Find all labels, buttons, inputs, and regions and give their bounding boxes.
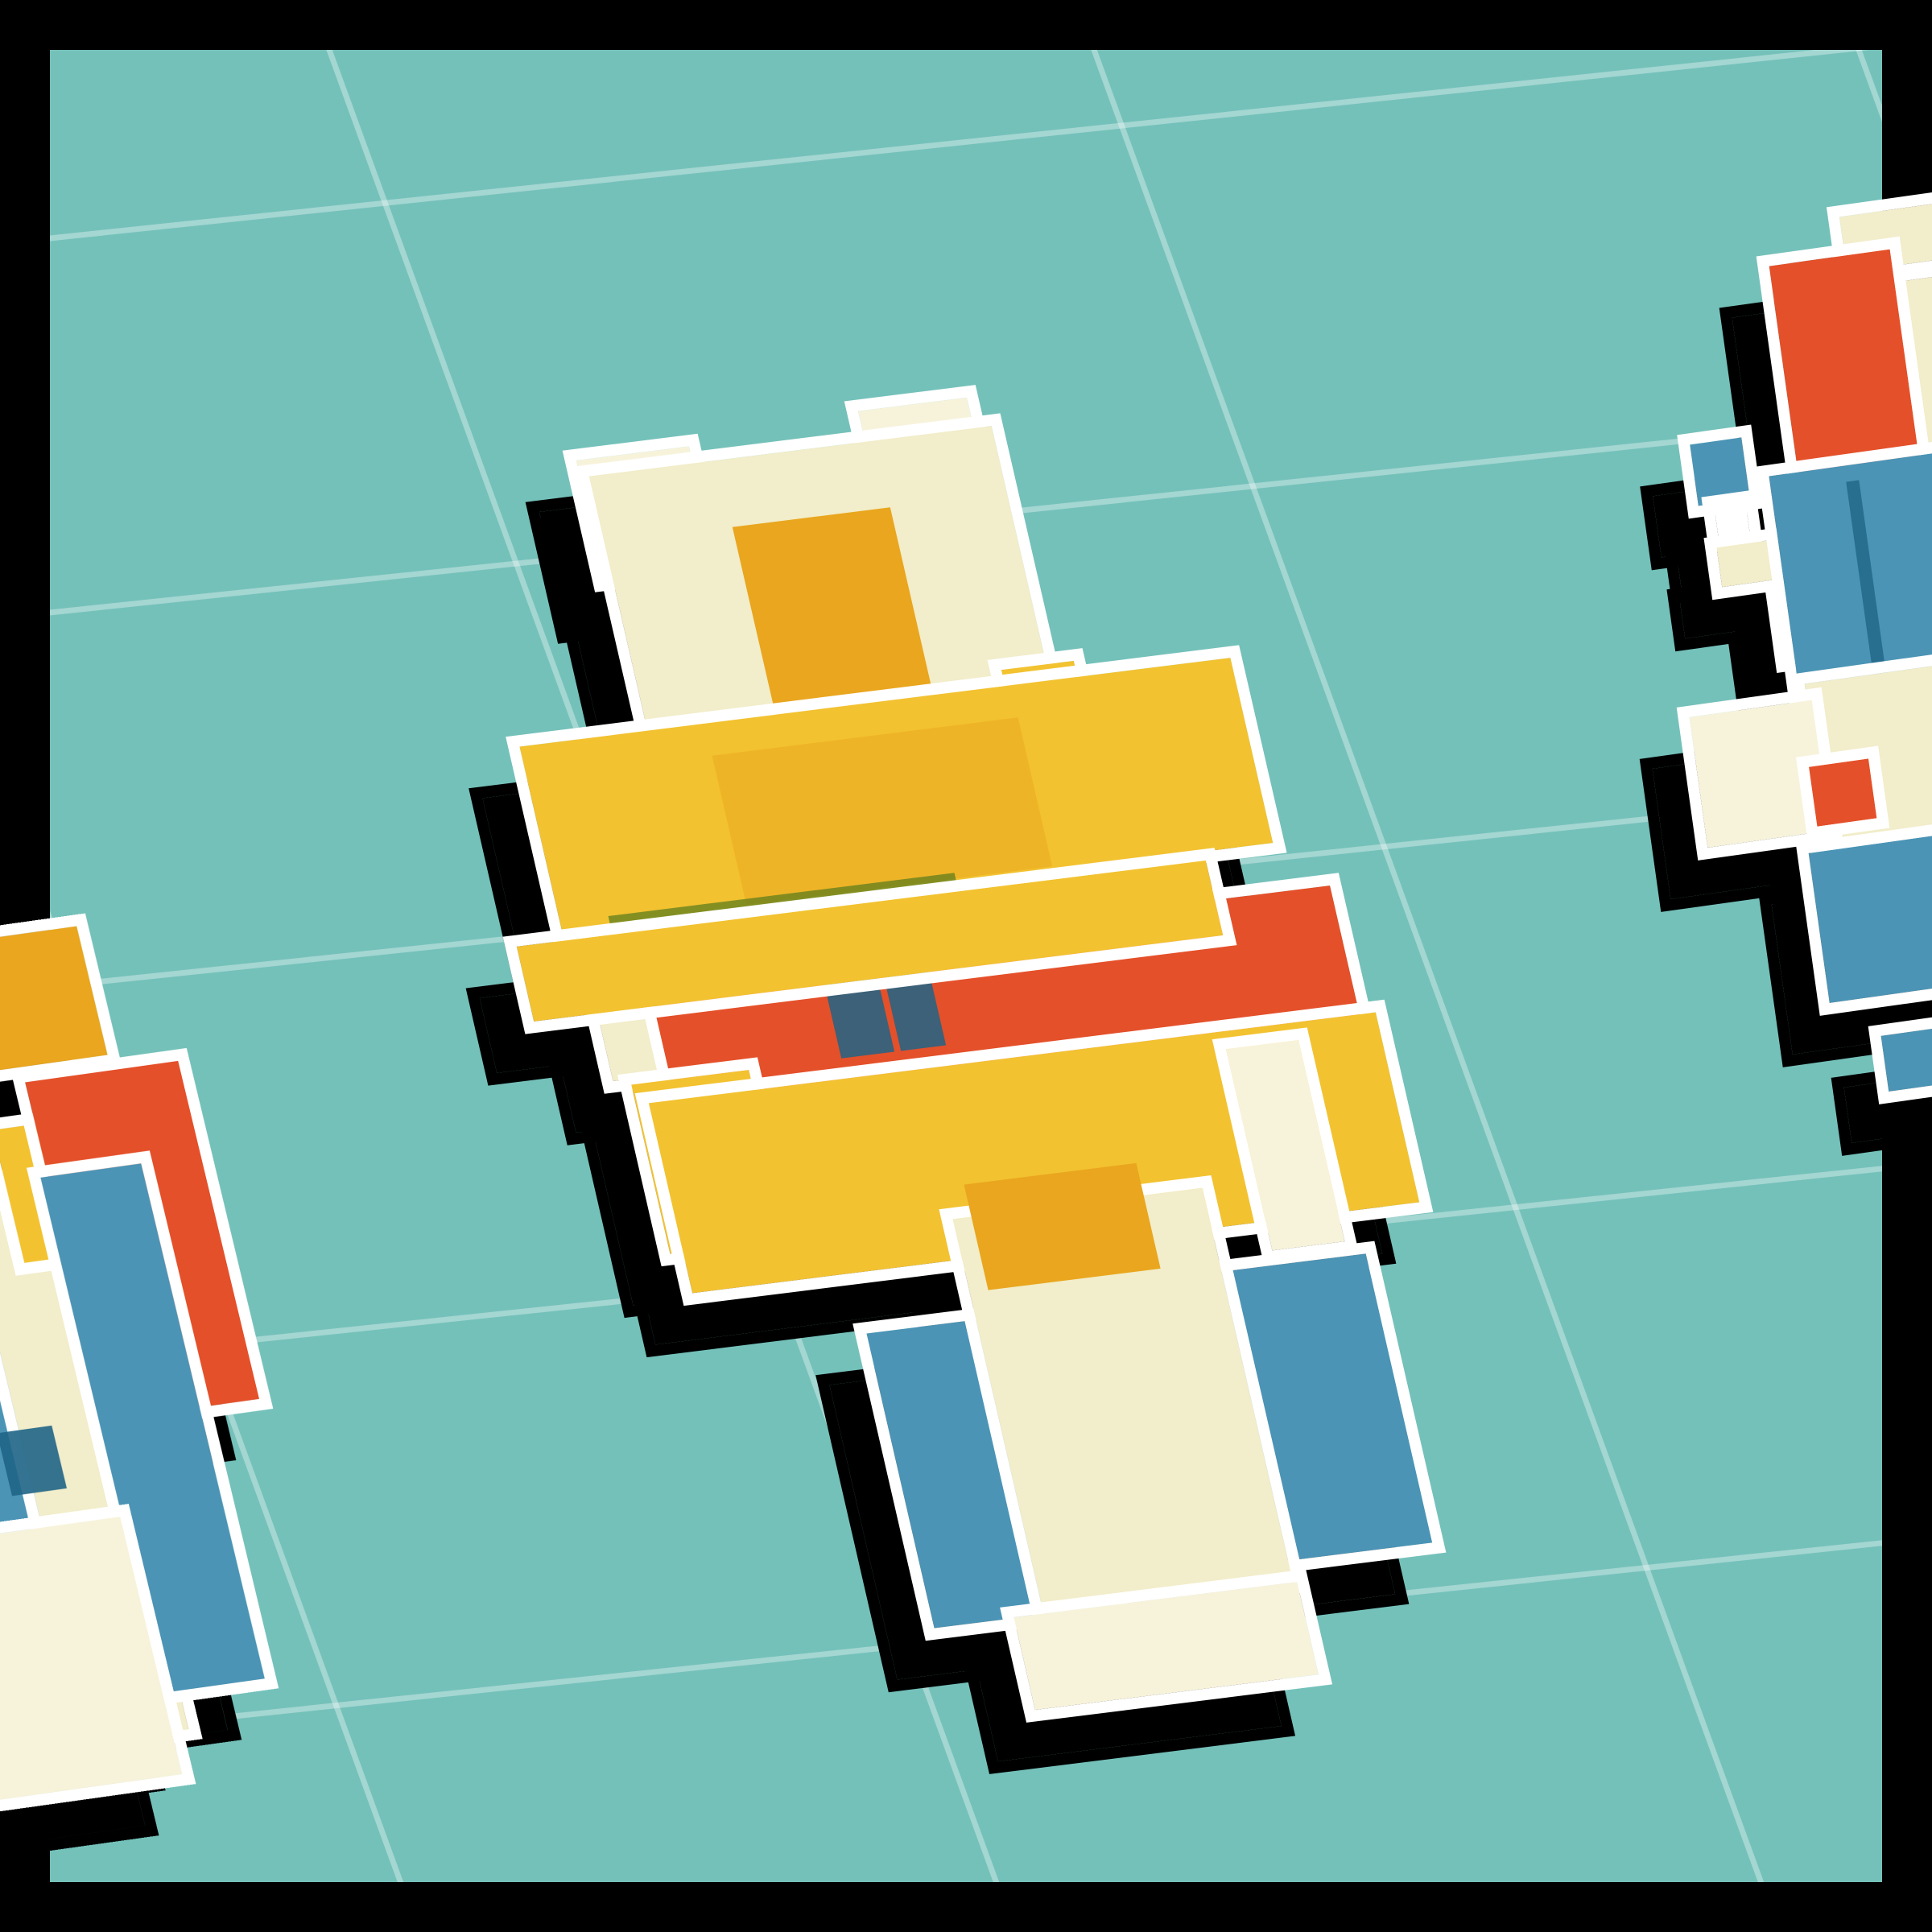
grid-line-horizontal	[0, 762, 1932, 1012]
block-head-main	[589, 426, 1072, 827]
block-white-stub	[1714, 502, 1750, 539]
illustration-canvas	[0, 0, 1932, 1932]
block-head-right-tab	[858, 398, 993, 526]
block-hat-bar-2	[517, 861, 1223, 1022]
frame-left	[0, 0, 50, 1932]
block-yellow-tab-left	[589, 732, 704, 846]
block-collar-dark-sq-2	[883, 969, 946, 1051]
block-collar-dark-sq-1	[824, 976, 894, 1059]
frame-bottom	[0, 1882, 1932, 1932]
block-cream-big-left	[1690, 700, 1831, 848]
frame-top	[0, 0, 1932, 50]
block-body-column-lower	[1013, 1582, 1318, 1710]
block-cream-right-tab	[1226, 1040, 1345, 1250]
frame-right	[1882, 0, 1932, 1932]
block-head-amber-stripe	[733, 507, 956, 815]
block-head-left-tab	[576, 447, 716, 580]
figure-right-cluster-plane	[0, 0, 1932, 1932]
figure-center-sprite	[0, 0, 1932, 1932]
figure-left-cluster	[0, 0, 1932, 1932]
block-amber-neck	[964, 1163, 1160, 1290]
block-right-leg	[1187, 1253, 1433, 1565]
block-body-column-upper	[953, 1188, 1294, 1614]
grid-line-horizontal	[0, 388, 1932, 638]
block-yellow-tab-right	[1001, 661, 1100, 782]
block-blue-stripe	[40, 1163, 265, 1693]
block-blue-small-square	[1690, 437, 1750, 506]
block-red-body	[646, 885, 1385, 1212]
figure-center-sprite-plane	[0, 0, 1932, 1932]
grid-line-horizontal	[0, 14, 1932, 263]
figure-right-cluster	[0, 0, 1932, 1932]
block-cream-small-2	[1778, 592, 1842, 660]
block-red-panel	[25, 1061, 259, 1421]
grid-line-vertical	[1014, 0, 1818, 1932]
block-left-leg	[866, 1311, 1117, 1628]
figure-left-cluster-plane	[0, 0, 1932, 1932]
grid-line-horizontal	[0, 1137, 1932, 1386]
block-cream-small-1	[1716, 537, 1797, 587]
block-hat-amber-shade	[712, 717, 1053, 905]
